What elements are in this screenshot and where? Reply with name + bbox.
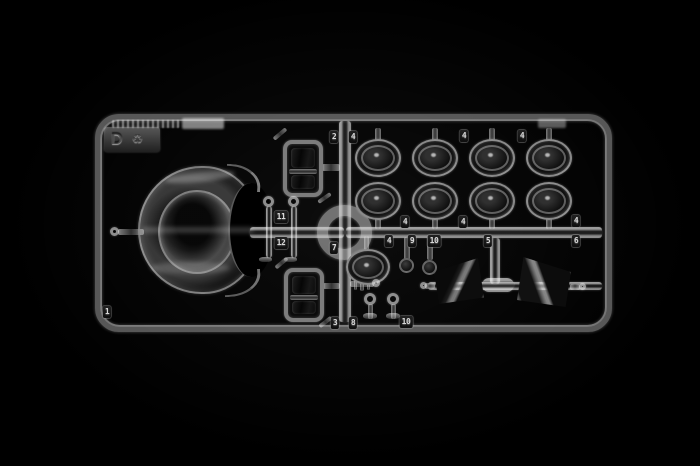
sprue-photo: D ♻ [0, 0, 700, 466]
standing-light-head [387, 293, 399, 305]
part-number-tag: 10 [428, 235, 441, 247]
lens-part-11-head [263, 196, 274, 207]
oval-window-part-4 [355, 139, 401, 177]
lens-part-12-stem [291, 206, 297, 258]
part-number-tag: 4 [572, 215, 580, 227]
door3-lower-pane [292, 301, 316, 314]
gate-letter-tab: D ♻ [104, 127, 160, 152]
door2-lower-pane [291, 175, 315, 189]
oval-window-part-4 [412, 182, 458, 220]
light-part-10-head [422, 260, 437, 275]
part-number-tag: 12 [275, 237, 288, 249]
canopy-mid-band [142, 227, 254, 233]
windshield6-knob [579, 283, 586, 290]
canopy-bottom-sheen [150, 262, 230, 274]
light-part-9-head [399, 258, 414, 273]
door-window-part-2 [283, 140, 323, 197]
oval-window-part-4 [412, 139, 458, 177]
lens-part-11-foot [259, 257, 272, 262]
standing-light-foot [386, 313, 400, 319]
part-number-tag: 1 [103, 306, 111, 318]
part-number-tag: 2 [330, 131, 338, 143]
part-number-tag: 11 [275, 211, 288, 223]
oval-window-part-4 [355, 182, 401, 220]
standing-light-foot [363, 313, 377, 319]
part-number-tag: 6 [572, 235, 580, 247]
canopy-nose-knob [110, 227, 119, 236]
molded-text-highlight [182, 118, 224, 129]
oval-window-part-4 [526, 139, 572, 177]
lens-part-12-head [288, 196, 299, 207]
oval-window-part-4 [469, 139, 515, 177]
door3-upper-pane [292, 276, 316, 294]
gate-letter: D [111, 132, 123, 148]
door2-gate-right [322, 164, 340, 171]
part-number-tag: 4 [518, 130, 526, 142]
oval-window-part-4 [469, 182, 515, 220]
windshield5-knob [420, 282, 427, 289]
part-number-tag: 4 [349, 131, 357, 143]
part-number-tag: 3 [331, 317, 339, 329]
ribbed-part-knob [372, 279, 380, 287]
door3-gate-right [323, 283, 340, 289]
recycling-icon: ♻ [132, 133, 144, 146]
part-number-tag: 10 [400, 316, 413, 328]
part-number-tag: 4 [459, 216, 467, 228]
part-number-tag: 4 [385, 235, 393, 247]
part-number-tag: 4 [460, 130, 468, 142]
door2-mid-bar [289, 169, 317, 174]
standing-light-head [364, 293, 376, 305]
lens-part-11-stem [266, 206, 272, 258]
oval-window-part [346, 249, 390, 285]
oval-window-part-4 [526, 182, 572, 220]
lens-part-12-foot [284, 257, 297, 262]
rail-highlight [538, 119, 566, 128]
part-number-tag: 9 [408, 235, 416, 247]
part-number-tag: 8 [349, 317, 357, 329]
part-number-tag: 5 [484, 235, 492, 247]
door3-mid-bar [290, 295, 318, 300]
door2-upper-pane [291, 148, 315, 168]
door-window-part-3 [284, 268, 324, 322]
part-number-tag: 4 [401, 216, 409, 228]
part-number-tag: 7 [330, 242, 338, 254]
runner-joint-bulge [482, 278, 514, 292]
